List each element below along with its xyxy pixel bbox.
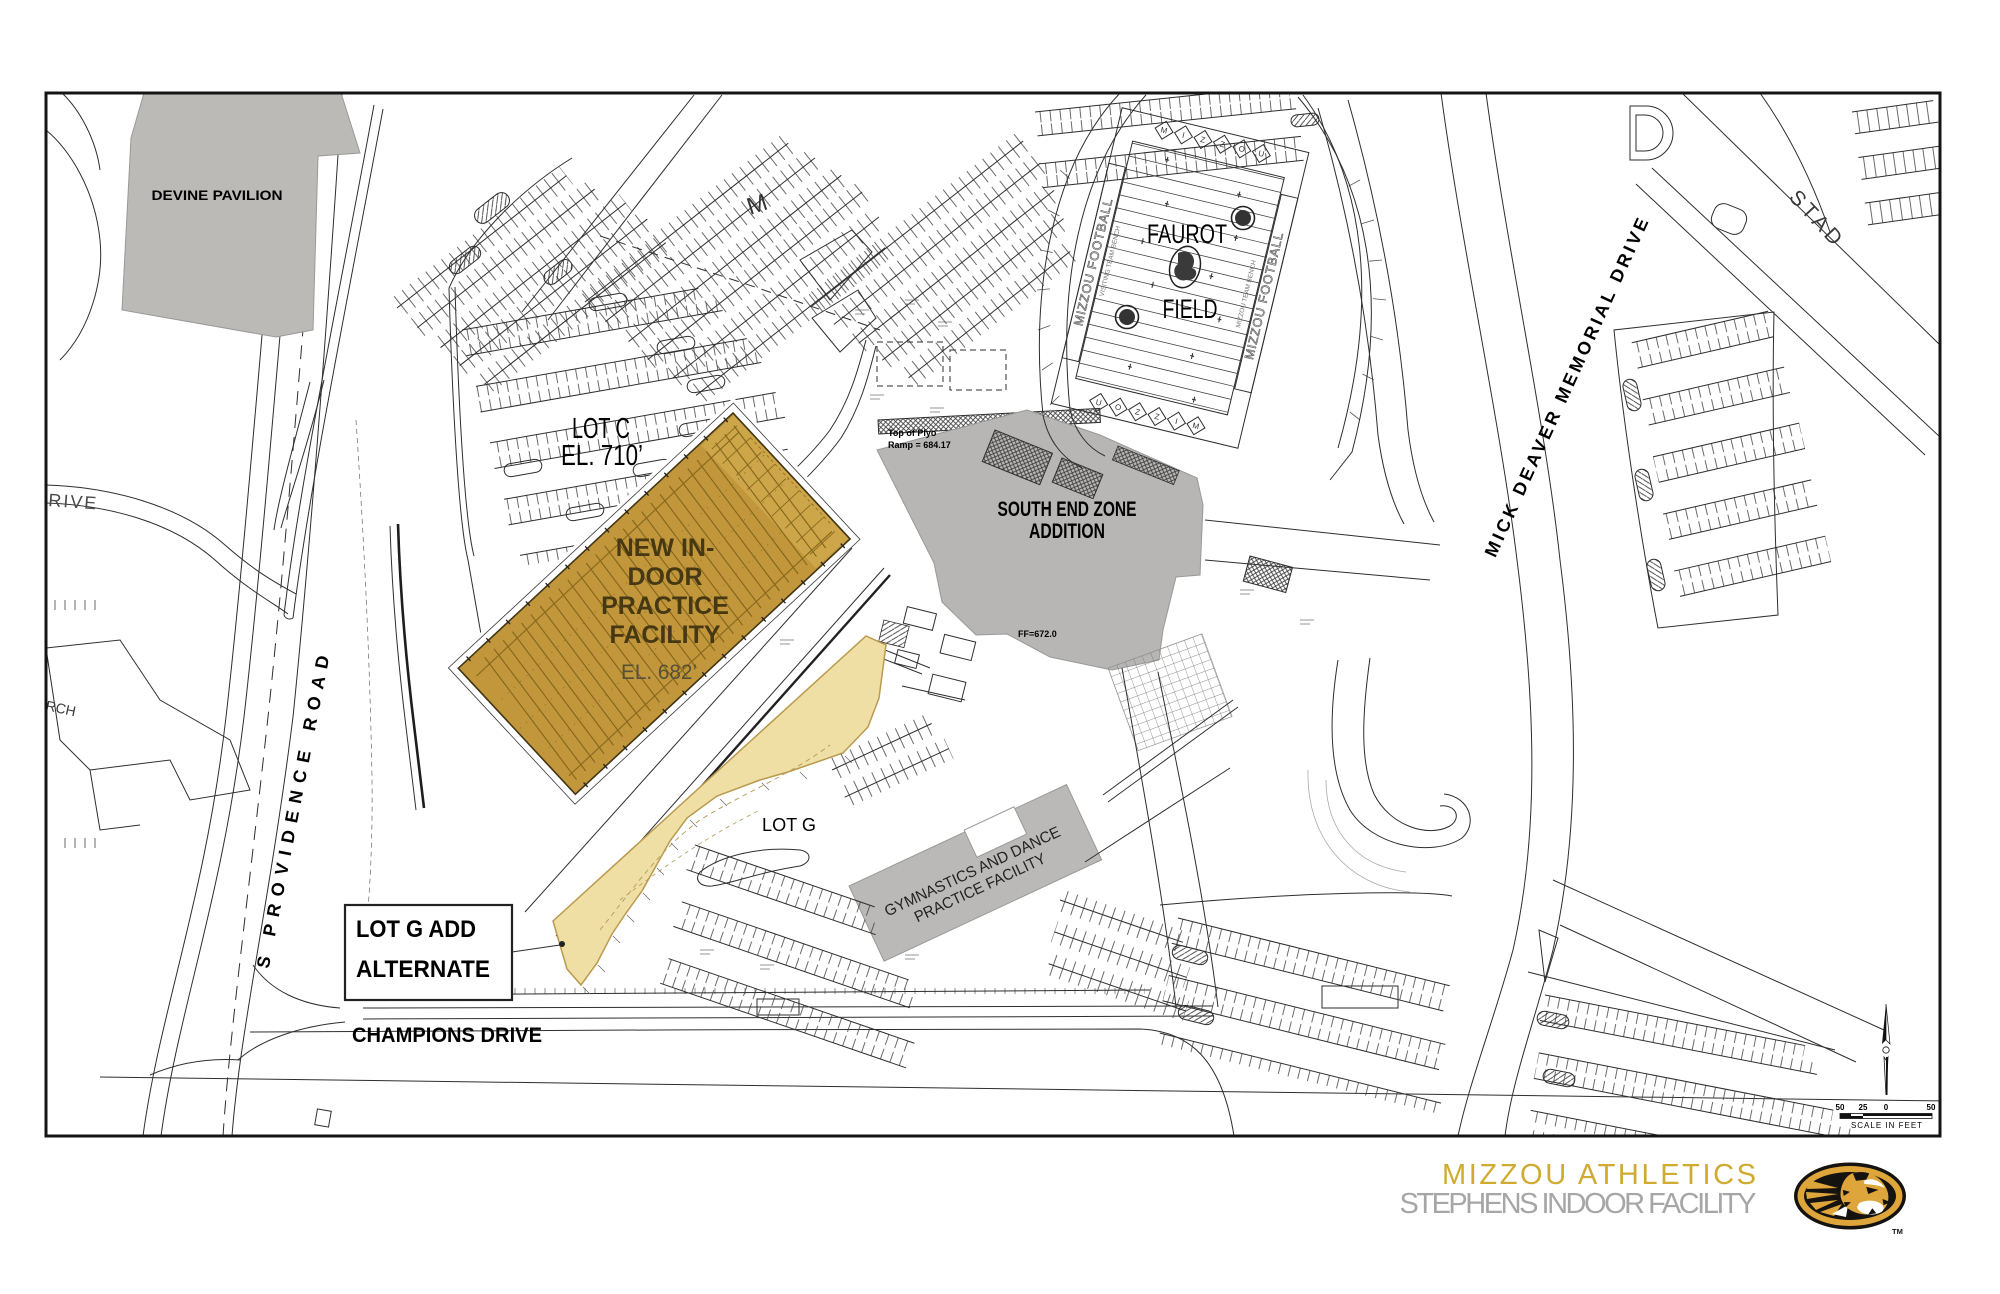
svg-text:EL. 682’: EL. 682’	[621, 661, 697, 684]
svg-text:50: 50	[1836, 1103, 1845, 1112]
svg-text:DOOR: DOOR	[628, 563, 703, 591]
svg-text:NEW IN-: NEW IN-	[616, 534, 715, 562]
svg-text:FIELD: FIELD	[1163, 294, 1218, 324]
svg-text:STEPHENS INDOOR FACILITY: STEPHENS INDOOR FACILITY	[1400, 1188, 1757, 1220]
svg-text:SOUTH END ZONE: SOUTH END ZONE	[998, 497, 1137, 521]
svg-text:50: 50	[1927, 1103, 1936, 1112]
svg-text:0: 0	[1884, 1103, 1889, 1112]
svg-text:ALTERNATE: ALTERNATE	[356, 956, 490, 983]
svg-text:25: 25	[1859, 1103, 1868, 1112]
svg-text:Ramp = 684.17: Ramp = 684.17	[888, 440, 951, 450]
svg-text:TM: TM	[1892, 1227, 1903, 1236]
svg-text:PRACTICE: PRACTICE	[601, 592, 729, 620]
svg-text:LOT G ADD: LOT G ADD	[356, 916, 476, 943]
svg-text:FAUROT: FAUROT	[1147, 219, 1227, 249]
svg-text:MIZZOU ATHLETICS: MIZZOU ATHLETICS	[1442, 1159, 1756, 1191]
svg-text:EL. 710’: EL. 710’	[561, 440, 643, 472]
svg-text:SCALE IN FEET: SCALE IN FEET	[1851, 1121, 1923, 1130]
svg-text:CHAMPIONS DRIVE: CHAMPIONS DRIVE	[352, 1024, 542, 1047]
svg-text:FACILITY: FACILITY	[609, 621, 720, 649]
svg-text:DEVINE PAVILION: DEVINE PAVILION	[152, 187, 283, 203]
svg-text:FF=672.0: FF=672.0	[1018, 629, 1057, 639]
svg-text:RIVE: RIVE	[48, 490, 99, 513]
svg-text:ADDITION: ADDITION	[1029, 519, 1105, 543]
svg-text:Top of Plyo: Top of Plyo	[888, 428, 937, 438]
svg-text:LOT G: LOT G	[762, 815, 816, 835]
